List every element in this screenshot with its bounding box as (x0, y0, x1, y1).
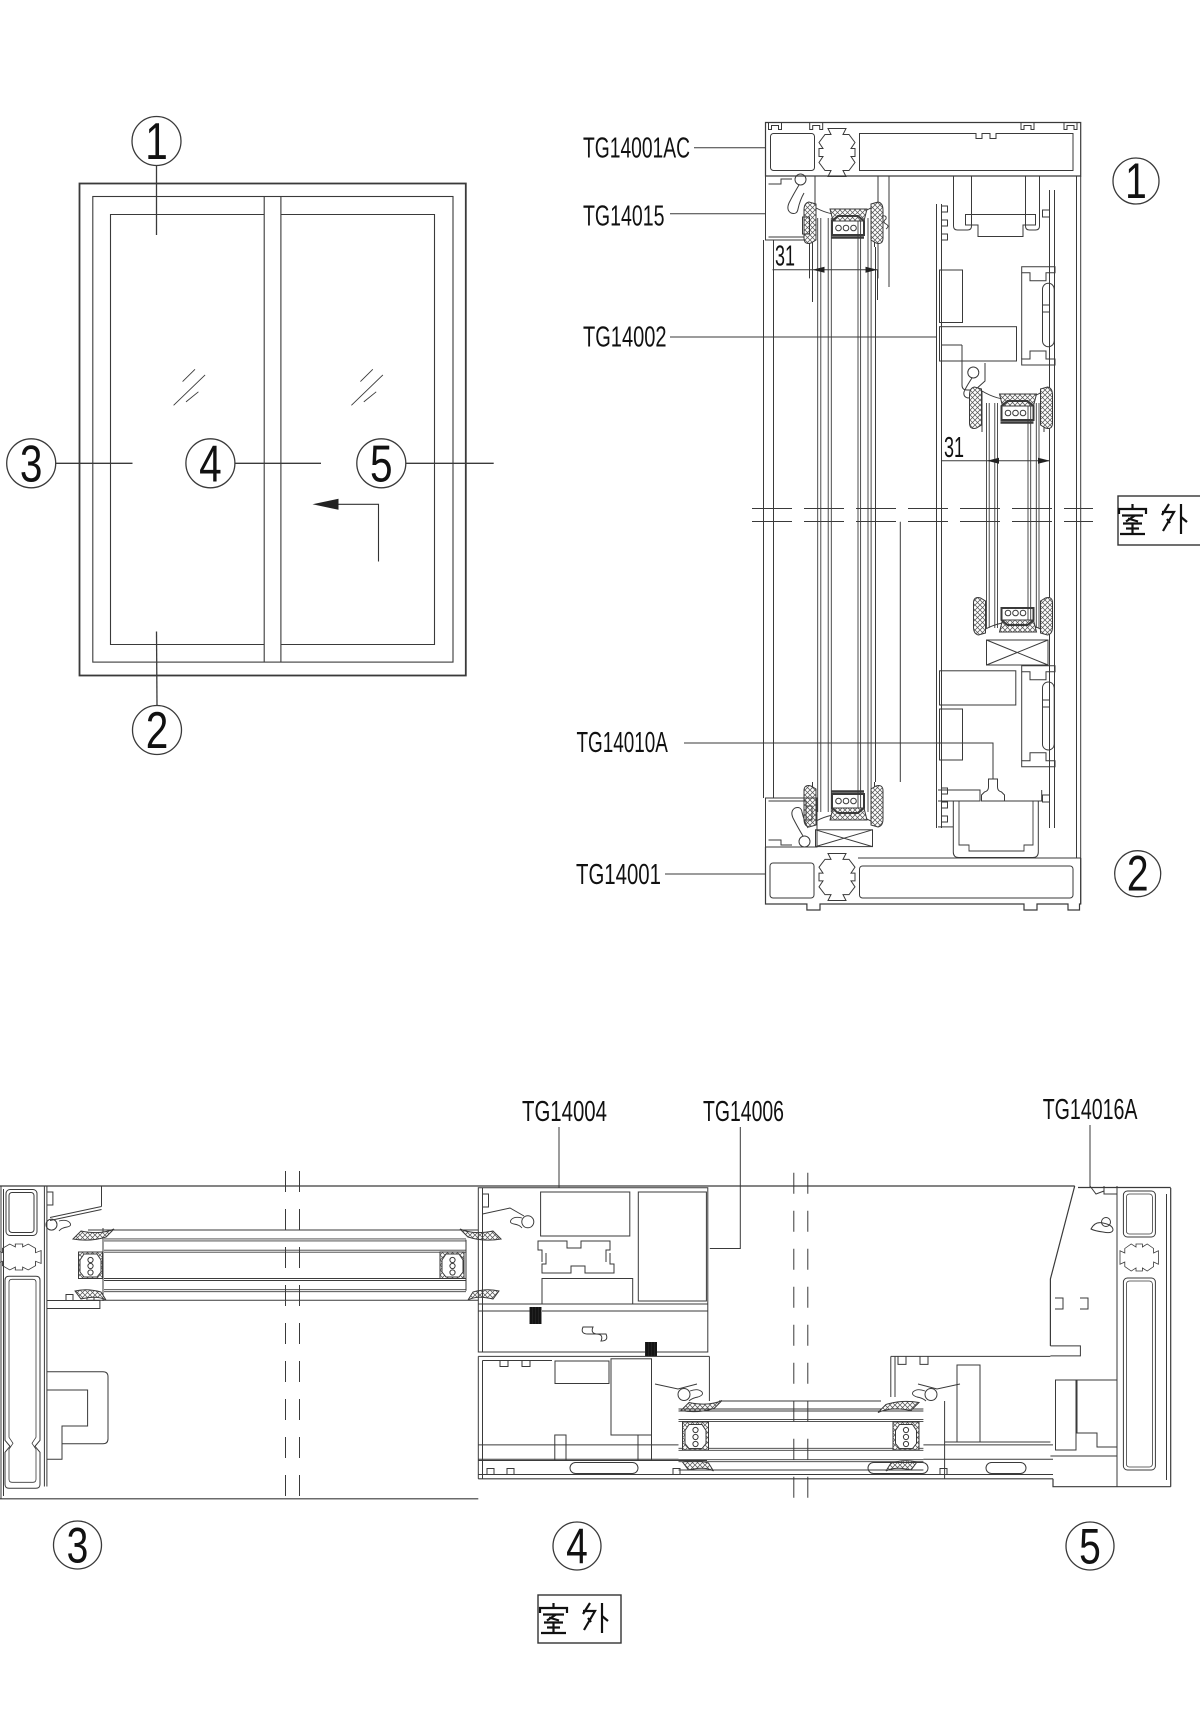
svg-text:TG14006: TG14006 (703, 1096, 784, 1128)
svg-text:TG14004: TG14004 (522, 1096, 607, 1128)
svg-text:1: 1 (1125, 152, 1147, 209)
svg-text:4: 4 (566, 1518, 588, 1575)
svg-text:2: 2 (146, 701, 169, 759)
svg-text:3: 3 (67, 1517, 89, 1574)
svg-text:5: 5 (1079, 1518, 1101, 1575)
svg-text:1: 1 (145, 112, 168, 170)
svg-text:5: 5 (370, 434, 393, 492)
svg-text:TG14002: TG14002 (583, 321, 666, 354)
svg-text:TG14001: TG14001 (576, 859, 661, 891)
svg-text:2: 2 (1127, 845, 1149, 902)
svg-text:4: 4 (199, 434, 222, 492)
svg-text:31: 31 (775, 240, 795, 272)
svg-text:TG14001AC: TG14001AC (583, 133, 690, 165)
svg-text:TG14016A: TG14016A (1043, 1095, 1138, 1127)
svg-text:31: 31 (944, 432, 964, 464)
svg-text:TG14015: TG14015 (583, 201, 664, 233)
svg-text:3: 3 (20, 434, 43, 492)
svg-text:TG14010A: TG14010A (577, 727, 669, 759)
